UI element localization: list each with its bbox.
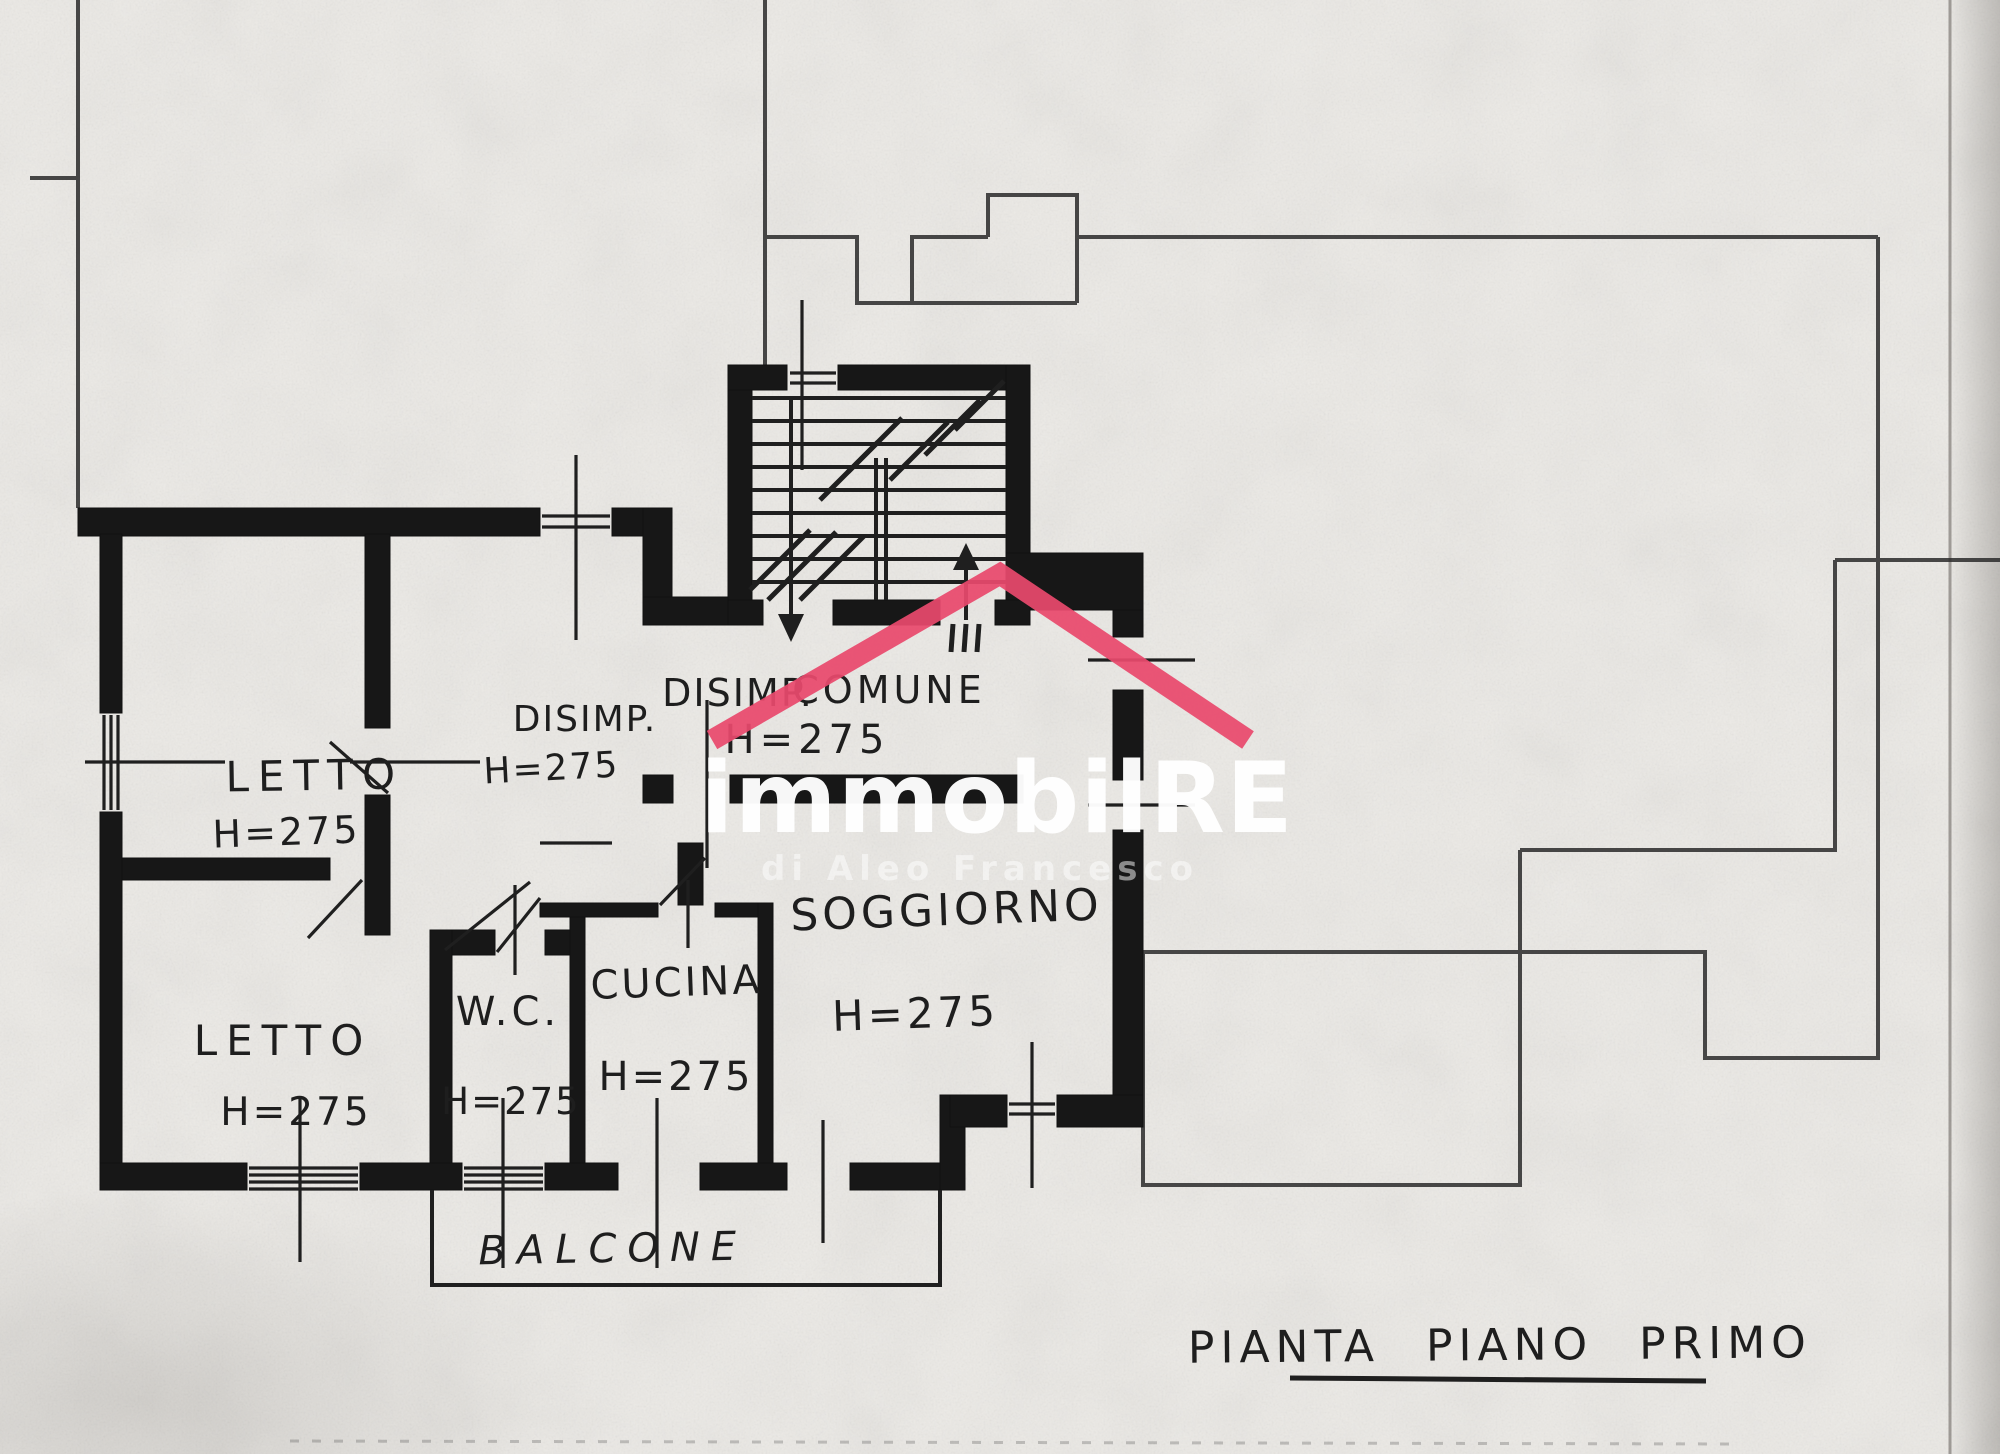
floor-plan-svg: LETTO H=275 LETTO H=275 W.C. H=275 CUCIN… <box>0 0 2000 1454</box>
watermark-brand: immobilRE <box>700 742 1294 856</box>
room-height-disimpegno: H=275 <box>482 744 620 792</box>
room-height-wc: H=275 <box>441 1080 580 1123</box>
room-height-soggiorno: H=275 <box>831 986 1000 1041</box>
page-edge-shadow <box>1948 0 2000 1454</box>
room-label-balcone: BALCONE <box>478 1224 747 1275</box>
room-label-disimpegno: DISIMP. <box>513 699 657 740</box>
plan-caption: PIANTA PIANO PRIMO <box>1188 1317 1812 1373</box>
floor-plan-page: LETTO H=275 LETTO H=275 W.C. H=275 CUCIN… <box>0 0 2000 1454</box>
room-label-letto1: LETTO <box>225 749 404 801</box>
room-label-wc: W.C. <box>456 989 560 1035</box>
caption-underline <box>1290 1378 1706 1381</box>
watermark-subtitle: di Aleo Francesco <box>761 849 1199 889</box>
room-height-cucina: H=275 <box>599 1054 754 1100</box>
room-label-letto2: LETTO <box>194 1016 373 1065</box>
room-height-letto1: H=275 <box>212 807 361 856</box>
room-height-letto2: H=275 <box>220 1090 371 1135</box>
room-label-cucina: CUCINA <box>590 957 764 1009</box>
